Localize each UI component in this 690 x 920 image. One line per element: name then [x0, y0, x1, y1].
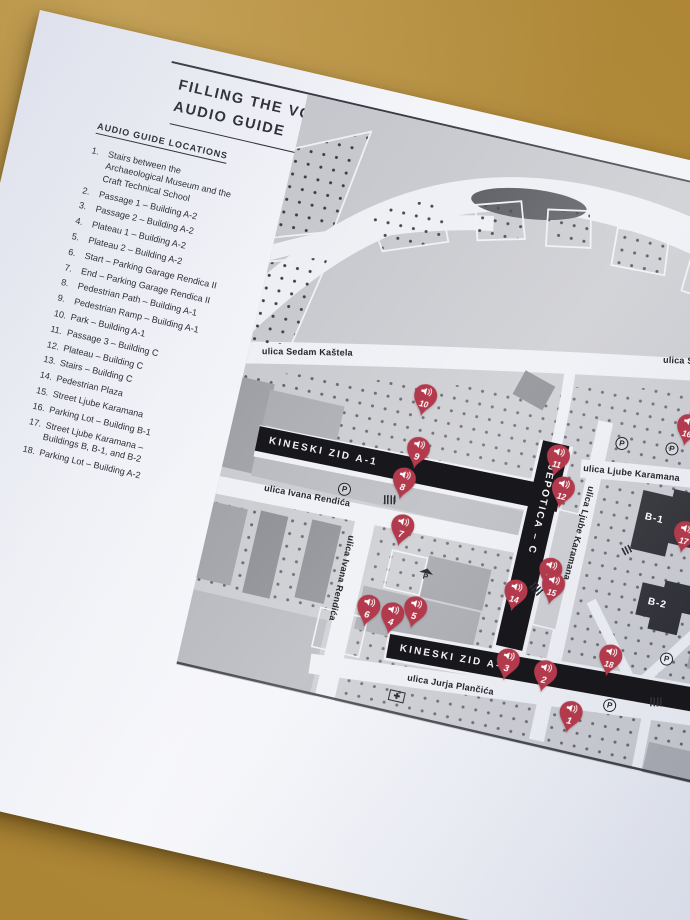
paper-sheet: FILLING THE VOID – AUDIO GUIDE AUDIO GUI… [0, 10, 690, 920]
svg-text:16: 16 [681, 429, 690, 440]
street-label-sedam-kastela: ulica Sedam Kaštela [262, 346, 353, 358]
stairs-icon [650, 697, 662, 706]
table-surface: FILLING THE VOID – AUDIO GUIDE AUDIO GUI… [0, 0, 690, 920]
parking-garage-icon: P [416, 567, 435, 585]
garage-p: P [422, 573, 429, 583]
